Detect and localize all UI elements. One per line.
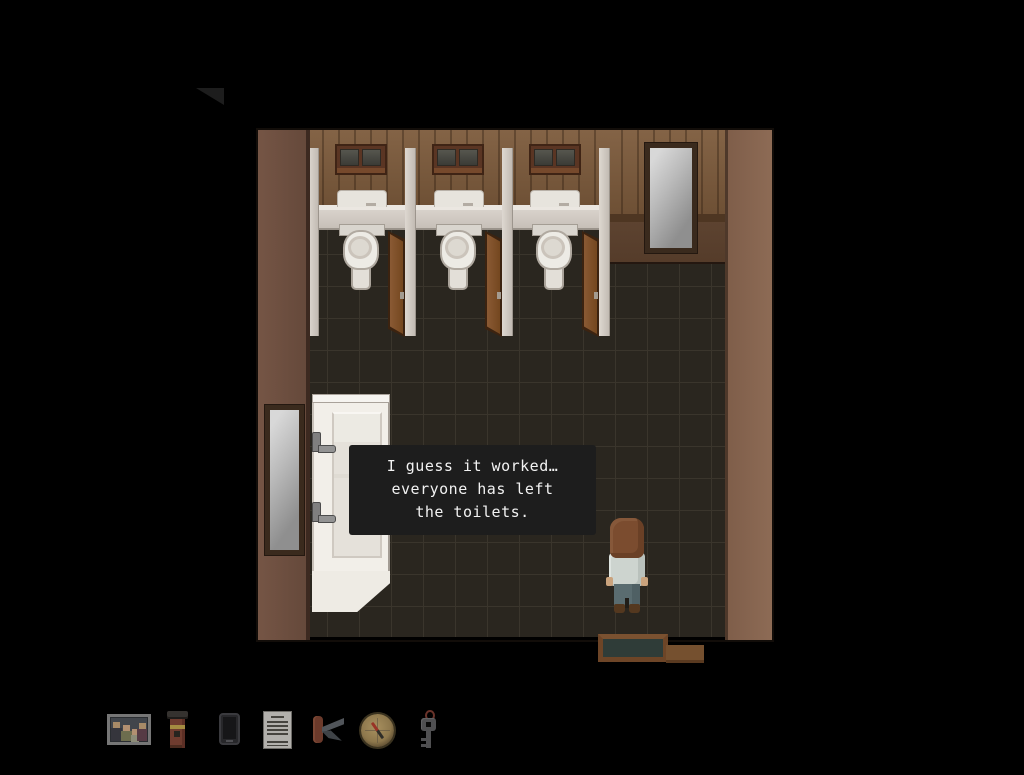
stall-partition-4 xyxy=(599,148,610,336)
window-pane xyxy=(437,149,456,166)
sink-top xyxy=(312,394,390,403)
stall-window-3 xyxy=(529,144,581,175)
door-handle xyxy=(497,292,501,299)
inventory-bar xyxy=(0,705,1024,765)
phone-home-bar xyxy=(226,740,233,742)
flashlight-head xyxy=(167,711,188,719)
stall-window-2 xyxy=(432,144,484,175)
key-tooth xyxy=(421,744,427,747)
character-hand-right xyxy=(641,577,648,586)
window-pane xyxy=(534,149,553,166)
doormat-edge xyxy=(666,645,704,663)
character-shoe-right xyxy=(629,604,640,613)
window-pane xyxy=(340,149,359,166)
cistern-handle xyxy=(463,203,473,206)
toilet-cistern-3 xyxy=(530,190,580,207)
game-screen: { "dialog": { "lines": ["I guess it work… xyxy=(0,0,1024,775)
stall-door-2[interactable] xyxy=(485,231,502,337)
toilet-seat xyxy=(445,236,469,259)
knife-handle xyxy=(313,716,323,743)
stall-door-1[interactable] xyxy=(388,231,405,337)
inventory-item-smartphone[interactable] xyxy=(219,713,240,745)
toilet-seat xyxy=(348,236,372,259)
window-sill xyxy=(337,168,385,173)
inventory-item-compass[interactable] xyxy=(361,714,394,747)
toilet-seat xyxy=(541,236,565,259)
bathroom-room[interactable] xyxy=(258,130,772,640)
inventory-item-key[interactable] xyxy=(420,710,437,748)
wall-mirror-left xyxy=(265,405,304,555)
stall-window-1 xyxy=(335,144,387,175)
window-sill xyxy=(531,168,579,173)
inventory-item-note[interactable] xyxy=(263,711,292,749)
note-text-lines xyxy=(267,721,288,746)
key-tooth xyxy=(421,738,427,741)
flashlight-button xyxy=(174,731,180,737)
inventory-item-family-photo[interactable] xyxy=(107,714,151,745)
faucet-spout xyxy=(318,515,336,523)
faucet-spout xyxy=(318,445,336,453)
stall-partition-2 xyxy=(405,148,416,336)
photo-person-body xyxy=(137,729,147,741)
cistern-handle xyxy=(366,203,376,206)
toilet-1[interactable] xyxy=(339,224,385,294)
note-title-line xyxy=(271,716,284,718)
sink-faucet-1 xyxy=(310,432,340,462)
window-sill xyxy=(434,168,482,173)
player-character xyxy=(606,518,648,614)
key-hole xyxy=(426,722,431,727)
flashlight-band xyxy=(170,725,185,729)
window-pane xyxy=(556,149,575,166)
stall-partition-3 xyxy=(502,148,513,336)
door-handle xyxy=(594,292,598,299)
dialog-line-3: the toilets. xyxy=(349,501,596,524)
note-paragraph-gap xyxy=(267,727,288,729)
doormat[interactable] xyxy=(598,634,668,662)
door-face xyxy=(487,234,500,334)
window-pane xyxy=(459,149,478,166)
toilet-2[interactable] xyxy=(436,224,482,294)
toilet-cistern-1 xyxy=(337,190,387,207)
character-shoe-left xyxy=(614,604,625,613)
right-wall xyxy=(725,130,772,640)
toilet-3[interactable] xyxy=(532,224,578,294)
window-pane xyxy=(362,149,381,166)
dialog-line-2: everyone has left xyxy=(349,478,596,501)
phone-screen xyxy=(223,717,236,739)
sink-faucet-2 xyxy=(310,502,340,532)
character-hand-left xyxy=(606,577,613,586)
inventory-item-pocket-knife[interactable] xyxy=(313,716,345,744)
dialog-line-1: I guess it worked… xyxy=(349,455,596,478)
sink-foot xyxy=(312,571,390,612)
character-hair xyxy=(610,518,644,558)
note-paragraph-gap xyxy=(267,737,288,739)
left-wall xyxy=(258,130,310,640)
wall-mirror-right xyxy=(645,143,697,253)
door-face xyxy=(390,234,403,334)
stall-door-3[interactable] xyxy=(582,231,599,337)
dialog-bubble[interactable]: I guess it worked… everyone has left the… xyxy=(349,445,596,535)
dialog-bubble-tail xyxy=(196,88,224,105)
inventory-item-flashlight[interactable] xyxy=(167,711,188,748)
door-face xyxy=(584,234,597,334)
cistern-handle xyxy=(559,203,569,206)
door-handle xyxy=(400,292,404,299)
toilet-cistern-2 xyxy=(434,190,484,207)
